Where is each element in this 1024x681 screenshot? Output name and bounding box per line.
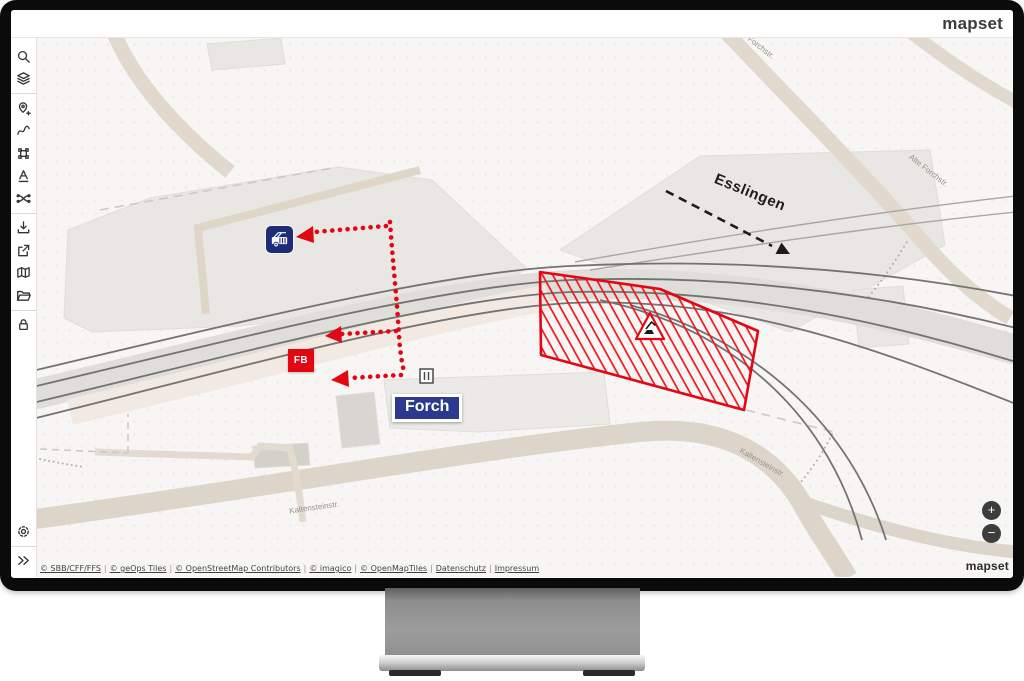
map-canvas[interactable]: Alte Forchstr. Alte Forchstr. Kaltenstei… [37,38,1013,577]
search-icon[interactable] [16,48,32,64]
attribution-separator: | [104,564,107,573]
collapse-panel-icon[interactable] [16,553,32,569]
sidebar-divider [11,310,36,311]
attribution-separator: | [430,564,433,573]
tool-sidebar [11,38,37,577]
export-share-icon[interactable] [16,242,32,258]
zoom-controls: + − [982,501,1001,543]
zoom-in-button[interactable]: + [982,501,1001,520]
app-window: mapset [11,10,1013,578]
sidebar-divider [11,93,36,94]
attribution-link[interactable]: © OpenStreetMap Contributors [175,564,300,573]
attribution-link[interactable]: © SBB/CFF/FFS [40,564,101,573]
attribution-link[interactable]: Impressum [495,564,539,573]
top-bar: mapset [11,10,1013,38]
attribution-separator: | [489,564,492,573]
track-switch-icon[interactable] [16,190,32,206]
station-icon [420,369,433,383]
attribution: © SBB/CFF/FFS|© geOps Tiles|© OpenStreet… [40,564,539,573]
buildings-layer [64,38,945,468]
attribution-link[interactable]: © geOps Tiles [110,564,167,573]
lock-icon[interactable] [16,317,32,333]
bus-icon [268,228,291,251]
draw-route-icon[interactable] [16,123,32,139]
attribution-link[interactable]: Datenschutz [436,564,486,573]
attribution-separator: | [304,564,307,573]
monitor-bezel: mapset [0,0,1024,591]
sidebar-divider [11,546,36,547]
transform-selection-icon[interactable] [16,145,32,161]
open-folder-icon[interactable] [16,287,32,303]
fb-marker[interactable]: FB [288,349,314,372]
download-icon[interactable] [16,220,32,236]
monitor-stand-neck [385,588,640,658]
monitor-foot [389,670,441,676]
attribution-separator: | [169,564,172,573]
attribution-separator: | [354,564,357,573]
attribution-link[interactable]: © imagico [309,564,351,573]
sidebar-divider [11,213,36,214]
mapset-logo: mapset [942,14,1003,34]
layers-icon[interactable] [16,71,32,87]
attribution-link[interactable]: © OpenMapTiles [360,564,427,573]
forch-station-label[interactable]: Forch [392,394,462,422]
map-artwork [37,38,1013,577]
mapset-watermark: mapset [966,559,1009,573]
bus-stop-marker[interactable] [266,226,293,253]
add-location-icon[interactable] [16,100,32,116]
add-text-icon[interactable] [16,168,32,184]
zoom-out-button[interactable]: − [982,524,1001,543]
monitor-stand-base [379,655,645,671]
map-view-icon[interactable] [16,265,32,281]
monitor-foot [583,670,635,676]
settings-gear-icon[interactable] [16,523,32,539]
